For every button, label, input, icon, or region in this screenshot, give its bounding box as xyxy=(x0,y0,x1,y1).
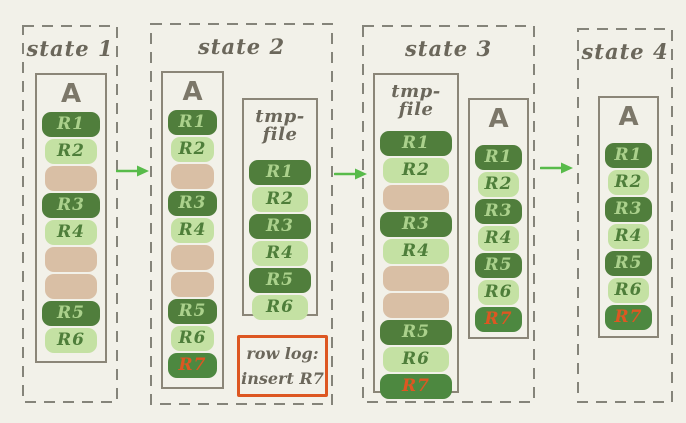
transition-arrow-icon xyxy=(540,161,574,175)
tmp-file-title: tmp-file xyxy=(244,108,316,144)
record-stack: R1R2R3R4R5R6R7 xyxy=(600,143,657,330)
record-block-r2: R2 xyxy=(608,170,649,195)
record-block-r4: R4 xyxy=(252,241,308,266)
state-panel-2: state 2 A R1R2R3R4R5R6R7 tmp-file R1R2R3… xyxy=(150,23,333,405)
record-block-r2: R2 xyxy=(171,137,214,162)
state-panel-4: state 4 A R1R2R3R4R5R6R7 xyxy=(577,28,673,403)
record-block-r6: R6 xyxy=(45,328,97,353)
file-box-a: A R1R2R3R4R5R6 xyxy=(35,73,107,363)
record-stack: R1R2R3R4R5R6R7 xyxy=(470,145,527,332)
empty-block xyxy=(383,266,449,291)
record-stack: R1R2R3R4R5R6 xyxy=(37,112,105,353)
record-block-r1: R1 xyxy=(475,145,522,170)
record-block-r7: R7 xyxy=(380,374,452,399)
empty-block xyxy=(45,247,97,272)
record-block-r3: R3 xyxy=(42,193,100,218)
record-block-r3: R3 xyxy=(168,191,217,216)
record-block-r7: R7 xyxy=(605,305,652,330)
file-a-title: A xyxy=(37,81,105,107)
record-block-r4: R4 xyxy=(383,239,449,264)
record-block-r4: R4 xyxy=(478,226,519,251)
record-block-r5: R5 xyxy=(380,320,452,345)
row-log-note-line1: row log: xyxy=(240,342,325,367)
state-2-label: state 2 xyxy=(150,34,333,59)
record-block-r3: R3 xyxy=(605,197,652,222)
file-box-tmp-file: tmp-file R1R2R3R4R5R6 xyxy=(242,98,318,316)
empty-block xyxy=(45,166,97,191)
record-block-r2: R2 xyxy=(45,139,97,164)
state-4-label: state 4 xyxy=(577,39,673,64)
record-block-r5: R5 xyxy=(42,301,100,326)
record-block-r2: R2 xyxy=(252,187,308,212)
record-block-r6: R6 xyxy=(171,326,214,351)
diagram-canvas: state 1 A R1R2R3R4R5R6 state 2 A R1R2R3R… xyxy=(0,0,686,423)
record-block-r7: R7 xyxy=(168,353,217,378)
file-box-a: A R1R2R3R4R5R6R7 xyxy=(468,98,529,339)
empty-block xyxy=(383,293,449,318)
row-log-note-line2: insert R7 xyxy=(240,367,325,392)
empty-block xyxy=(171,245,214,270)
record-block-r4: R4 xyxy=(171,218,214,243)
empty-block xyxy=(171,272,214,297)
record-stack: R1R2R3R4R5R6R7 xyxy=(163,110,222,378)
record-stack: R1R2R3R4R5R6 xyxy=(244,160,316,320)
record-block-r6: R6 xyxy=(252,295,308,320)
empty-block xyxy=(45,274,97,299)
record-stack: R1R2R3R4R5R6R7 xyxy=(375,131,457,399)
state-3-label: state 3 xyxy=(362,36,535,61)
transition-arrow-icon xyxy=(116,164,150,178)
record-block-r5: R5 xyxy=(168,299,217,324)
file-a-title: A xyxy=(600,104,657,130)
record-block-r1: R1 xyxy=(249,160,311,185)
tmp-file-title: tmp-file xyxy=(375,83,457,119)
record-block-r5: R5 xyxy=(605,251,652,276)
file-a-title: A xyxy=(163,79,222,105)
empty-block xyxy=(383,185,449,210)
empty-block xyxy=(171,164,214,189)
record-block-r4: R4 xyxy=(45,220,97,245)
file-box-a: A R1R2R3R4R5R6R7 xyxy=(161,71,224,389)
record-block-r2: R2 xyxy=(383,158,449,183)
file-box-a: A R1R2R3R4R5R6R7 xyxy=(598,96,659,338)
record-block-r1: R1 xyxy=(42,112,100,137)
record-block-r2: R2 xyxy=(478,172,519,197)
record-block-r6: R6 xyxy=(383,347,449,372)
record-block-r1: R1 xyxy=(380,131,452,156)
record-block-r6: R6 xyxy=(478,280,519,305)
record-block-r6: R6 xyxy=(608,278,649,303)
record-block-r4: R4 xyxy=(608,224,649,249)
state-panel-1: state 1 A R1R2R3R4R5R6 xyxy=(22,25,118,403)
file-box-tmp-file: tmp-file R1R2R3R4R5R6R7 xyxy=(373,73,459,393)
state-panel-3: state 3 tmp-file R1R2R3R4R5R6R7 A R1R2R3… xyxy=(362,25,535,403)
record-block-r3: R3 xyxy=(475,199,522,224)
row-log-note: row log: insert R7 xyxy=(237,335,328,397)
record-block-r5: R5 xyxy=(475,253,522,278)
file-a-title: A xyxy=(470,106,527,132)
record-block-r7: R7 xyxy=(475,307,522,332)
record-block-r1: R1 xyxy=(168,110,217,135)
record-block-r3: R3 xyxy=(380,212,452,237)
record-block-r1: R1 xyxy=(605,143,652,168)
record-block-r3: R3 xyxy=(249,214,311,239)
state-1-label: state 1 xyxy=(22,36,118,61)
record-block-r5: R5 xyxy=(249,268,311,293)
